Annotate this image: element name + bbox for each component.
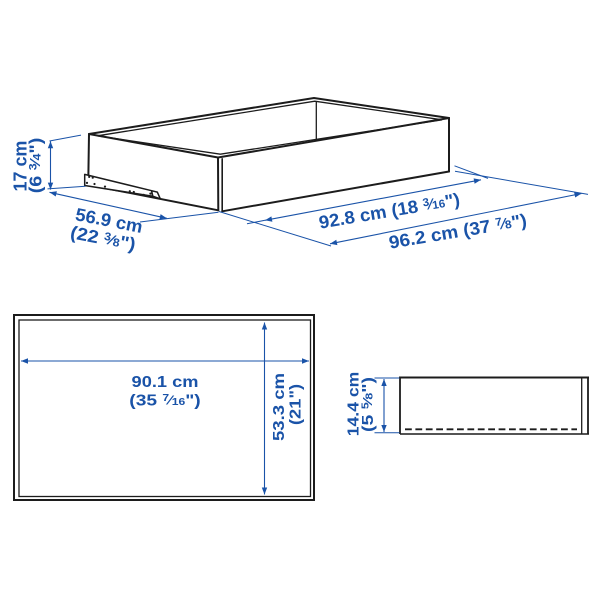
svg-text:(5 5⁄8"): (5 5⁄8") <box>359 377 377 432</box>
svg-text:(6 3⁄4"): (6 3⁄4") <box>26 138 46 194</box>
svg-text:90.1 cm: 90.1 cm <box>132 372 199 391</box>
svg-text:(21"): (21") <box>286 384 305 425</box>
